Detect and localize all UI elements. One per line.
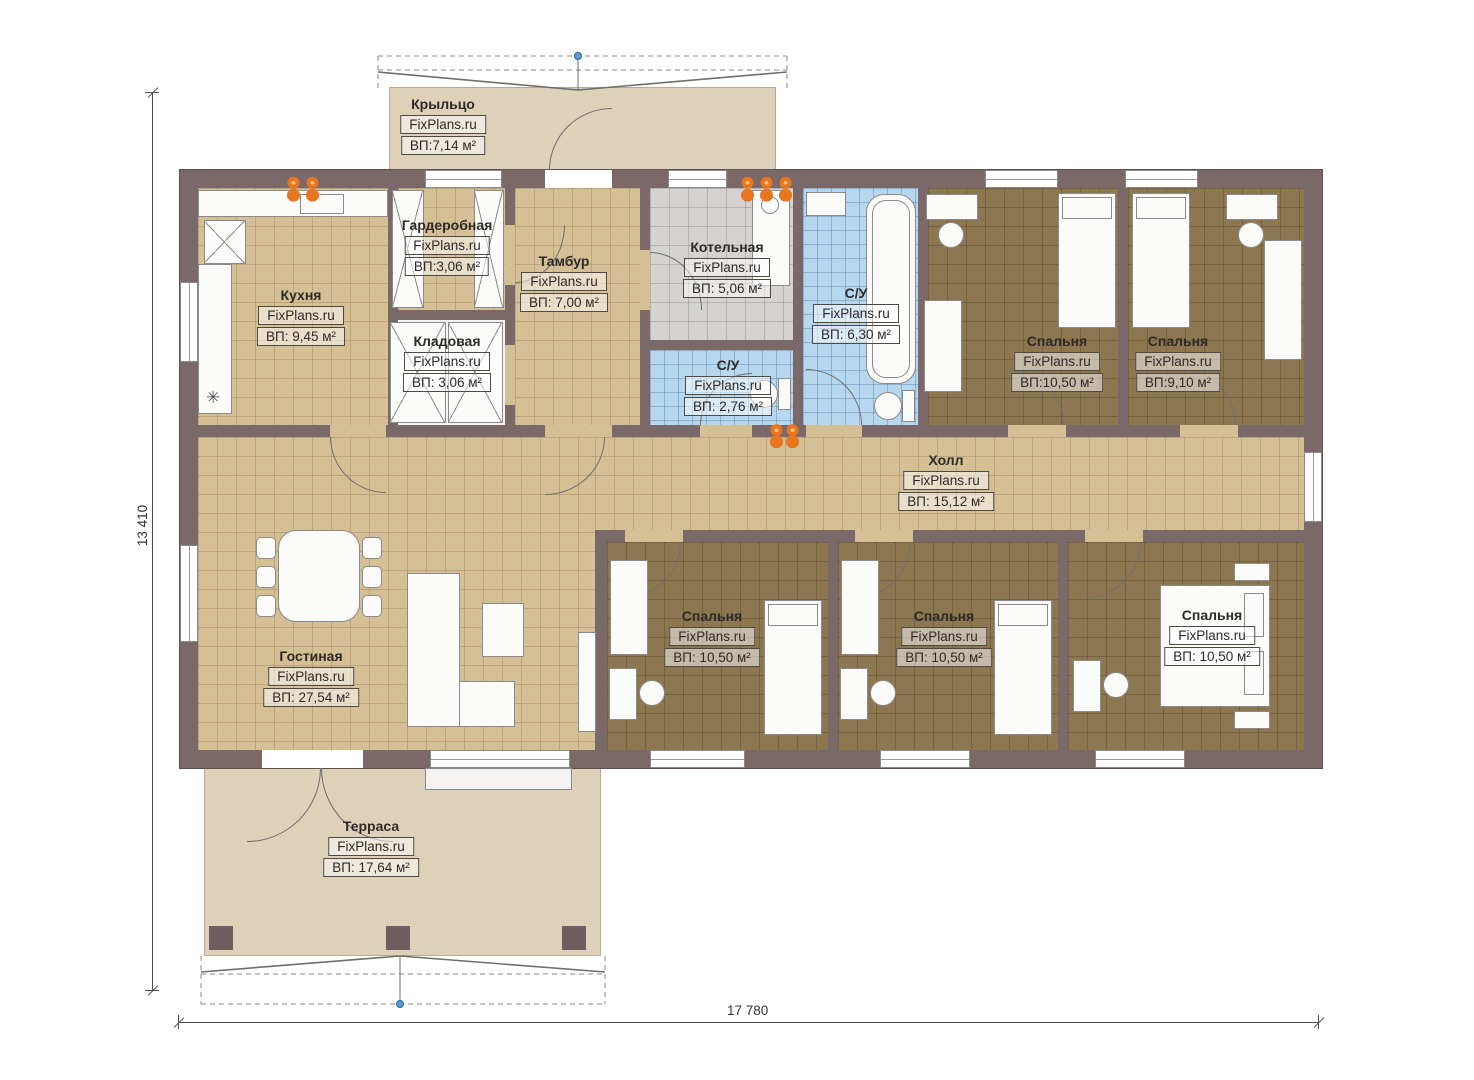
- room-label-kotelnaya: Котельная FixPlans.ru ВП: 5,06 м²: [683, 239, 771, 298]
- chair: [639, 680, 665, 706]
- wall: [1118, 188, 1128, 437]
- pillow: [1062, 197, 1112, 219]
- room-label-holl: Холл FixPlans.ru ВП: 15,12 м²: [898, 452, 994, 511]
- room-label-gostinaya: Гостиная FixPlans.ru ВП: 27,54 м²: [263, 648, 359, 707]
- wall-hall-south: [595, 530, 1304, 542]
- brand-watermark: FixPlans.ru: [1014, 352, 1100, 371]
- wall: [595, 530, 607, 750]
- window: [1125, 170, 1198, 188]
- wall: [640, 340, 803, 350]
- room-label-bedroom-b2: Спальня FixPlans.ru ВП: 10,50 м²: [896, 608, 992, 667]
- door-opening: [806, 425, 862, 437]
- sink: [806, 192, 846, 216]
- window: [1304, 452, 1322, 522]
- room-label-su-small: С/У FixPlans.ru ВП: 2,76 м²: [684, 357, 772, 416]
- room-label-kuhnya: Кухня FixPlans.ru ВП: 9,45 м²: [257, 287, 345, 346]
- brand-watermark: FixPlans.ru: [685, 376, 771, 395]
- chair: [870, 680, 896, 706]
- window: [430, 750, 570, 768]
- room-label-kryltso: Крыльцо FixPlans.ru ВП:7,14 м²: [400, 96, 486, 155]
- room-name: С/У: [684, 357, 772, 373]
- room-name: Спальня: [1011, 333, 1103, 349]
- room-name: С/У: [812, 285, 900, 301]
- nightstand: [1234, 711, 1270, 729]
- room-name: Спальня: [1135, 333, 1221, 349]
- door-opening: [700, 425, 752, 437]
- socket-icon: [778, 176, 793, 202]
- window: [668, 170, 727, 188]
- wall: [828, 542, 838, 750]
- room-area: ВП: 7,00 м²: [520, 293, 608, 312]
- room-name: Тамбур: [520, 253, 608, 269]
- socket-icon: [770, 424, 783, 448]
- room-name: Котельная: [683, 239, 771, 255]
- coffee-table: [482, 603, 524, 657]
- desk: [1073, 660, 1101, 712]
- brand-watermark: FixPlans.ru: [1169, 626, 1255, 645]
- toilet-tank: [778, 378, 791, 410]
- terrace-roof-outline: [198, 952, 608, 1010]
- window: [180, 545, 198, 642]
- socket-icon: [759, 176, 774, 202]
- room-area: ВП: 17,64 м²: [323, 858, 419, 877]
- socket-icon: [305, 176, 320, 202]
- brand-watermark: FixPlans.ru: [268, 667, 354, 686]
- room-area: ВП: 10,50 м²: [896, 648, 992, 667]
- terrace-post: [209, 926, 233, 950]
- pillow: [1136, 197, 1186, 219]
- dining-table: [278, 530, 360, 622]
- toilet-bowl: [874, 392, 902, 420]
- room-area: ВП:10,50 м²: [1011, 373, 1103, 392]
- roof-valley-marker: [397, 1001, 404, 1008]
- window: [650, 750, 745, 768]
- toilet-tank: [902, 390, 915, 422]
- door-opening: [640, 250, 650, 310]
- room-area: ВП: 5,06 м²: [683, 279, 771, 298]
- chair: [1103, 672, 1129, 698]
- room-label-garderobnaya: Гардеробная FixPlans.ru ВП:3,06 м²: [402, 217, 493, 276]
- window: [880, 750, 970, 768]
- room-area: ВП: 15,12 м²: [898, 492, 994, 511]
- room-label-su-big: С/У FixPlans.ru ВП: 6,30 м²: [812, 285, 900, 344]
- desk: [609, 668, 637, 720]
- desk: [840, 668, 868, 720]
- window-sill: [425, 768, 572, 790]
- pillow: [998, 604, 1048, 626]
- brand-watermark: FixPlans.ru: [684, 258, 770, 277]
- room-label-bedroom-b3: Спальня FixPlans.ru ВП: 10,50 м²: [1164, 607, 1260, 666]
- room-name: Кухня: [257, 287, 345, 303]
- door-opening: [1085, 530, 1143, 542]
- dining-chair: [256, 595, 276, 617]
- brand-watermark: FixPlans.ru: [903, 471, 989, 490]
- room-label-bedroom-b1: Спальня FixPlans.ru ВП: 10,50 м²: [664, 608, 760, 667]
- room-name: Гостиная: [263, 648, 359, 664]
- roof-ridge-marker: [575, 53, 582, 60]
- window: [985, 170, 1058, 188]
- room-area: ВП: 27,54 м²: [263, 688, 359, 707]
- room-label-kladovaya: Кладовая FixPlans.ru ВП: 3,06 м²: [403, 333, 491, 392]
- room-name: Спальня: [664, 608, 760, 624]
- chair: [938, 222, 964, 248]
- tv-stand: [578, 632, 596, 732]
- brand-watermark: FixPlans.ru: [258, 306, 344, 325]
- brand-watermark: FixPlans.ru: [813, 304, 899, 323]
- living-room-floor: [198, 437, 595, 750]
- room-area: ВП:7,14 м²: [401, 136, 485, 155]
- sofa: [459, 681, 515, 727]
- room-name: Крыльцо: [400, 96, 486, 112]
- pillow: [768, 604, 818, 626]
- dining-chair: [362, 566, 382, 588]
- wall: [388, 310, 515, 320]
- room-area: ВП:9,10 м²: [1136, 373, 1220, 392]
- wardrobe: [924, 300, 962, 392]
- sofa: [407, 573, 460, 727]
- porch-roof-outline: [375, 50, 790, 96]
- window: [1095, 750, 1185, 768]
- door-opening: [855, 530, 913, 542]
- nightstand: [1234, 563, 1270, 581]
- socket-icon: [786, 424, 799, 448]
- brand-watermark: FixPlans.ru: [404, 236, 490, 255]
- door-opening: [330, 425, 386, 437]
- wall: [793, 188, 803, 437]
- fridge-icon: ✳: [206, 388, 220, 408]
- door-opening: [545, 425, 612, 437]
- window: [180, 282, 198, 362]
- dimension-line-bottom: [178, 1022, 1318, 1023]
- brand-watermark: FixPlans.ru: [669, 627, 755, 646]
- dimension-label-left: 13 410: [135, 505, 150, 546]
- wardrobe: [610, 560, 648, 655]
- dining-chair: [256, 566, 276, 588]
- room-label-tambur: Тамбур FixPlans.ru ВП: 7,00 м²: [520, 253, 608, 312]
- room-area: ВП: 3,06 м²: [403, 373, 491, 392]
- dining-chair: [362, 595, 382, 617]
- window: [425, 170, 502, 188]
- room-area: ВП: 10,50 м²: [664, 648, 760, 667]
- dining-chair: [362, 537, 382, 559]
- door-opening: [505, 345, 515, 405]
- room-label-bedroom-top2: Спальня FixPlans.ru ВП:9,10 м²: [1135, 333, 1221, 392]
- room-name: Гардеробная: [402, 217, 493, 233]
- room-area: ВП: 6,30 м²: [812, 325, 900, 344]
- room-area: ВП: 9,45 м²: [257, 327, 345, 346]
- room-name: Кладовая: [403, 333, 491, 349]
- room-area: ВП: 2,76 м²: [684, 397, 772, 416]
- wardrobe: [841, 560, 879, 655]
- terrace-post: [386, 926, 410, 950]
- brand-watermark: FixPlans.ru: [404, 352, 490, 371]
- dining-chair: [256, 537, 276, 559]
- room-name: Спальня: [896, 608, 992, 624]
- door-opening: [505, 225, 515, 285]
- socket-icon: [286, 176, 301, 202]
- brand-watermark: FixPlans.ru: [400, 115, 486, 134]
- room-label-terrasa: Терраса FixPlans.ru ВП: 17,64 м²: [323, 818, 419, 877]
- brand-watermark: FixPlans.ru: [521, 272, 607, 291]
- room-area: ВП:3,06 м²: [405, 257, 489, 276]
- room-label-bedroom-top1: Спальня FixPlans.ru ВП:10,50 м²: [1011, 333, 1103, 392]
- brand-watermark: FixPlans.ru: [901, 627, 987, 646]
- room-name: Холл: [898, 452, 994, 468]
- brand-watermark: FixPlans.ru: [1135, 352, 1221, 371]
- desk: [926, 194, 978, 220]
- wall: [1058, 542, 1068, 750]
- dimension-line-left: [152, 92, 153, 990]
- door-opening: [625, 530, 683, 542]
- room-area: ВП: 10,50 м²: [1164, 647, 1260, 666]
- dimension-label-bottom: 17 780: [727, 1003, 768, 1018]
- terrace-post: [562, 926, 586, 950]
- wall: [640, 188, 650, 437]
- wardrobe: [1264, 240, 1302, 360]
- room-name: Терраса: [323, 818, 419, 834]
- door-opening: [1008, 425, 1066, 437]
- chair: [1238, 222, 1264, 248]
- socket-icon: [740, 176, 755, 202]
- stove: [204, 220, 246, 264]
- room-name: Спальня: [1164, 607, 1260, 623]
- floor-plan: ✳: [0, 0, 1474, 1080]
- desk: [1226, 194, 1278, 220]
- terrace-door-opening: [262, 750, 363, 768]
- door-opening: [1180, 425, 1238, 437]
- brand-watermark: FixPlans.ru: [328, 837, 414, 856]
- porch-door-opening: [545, 170, 612, 188]
